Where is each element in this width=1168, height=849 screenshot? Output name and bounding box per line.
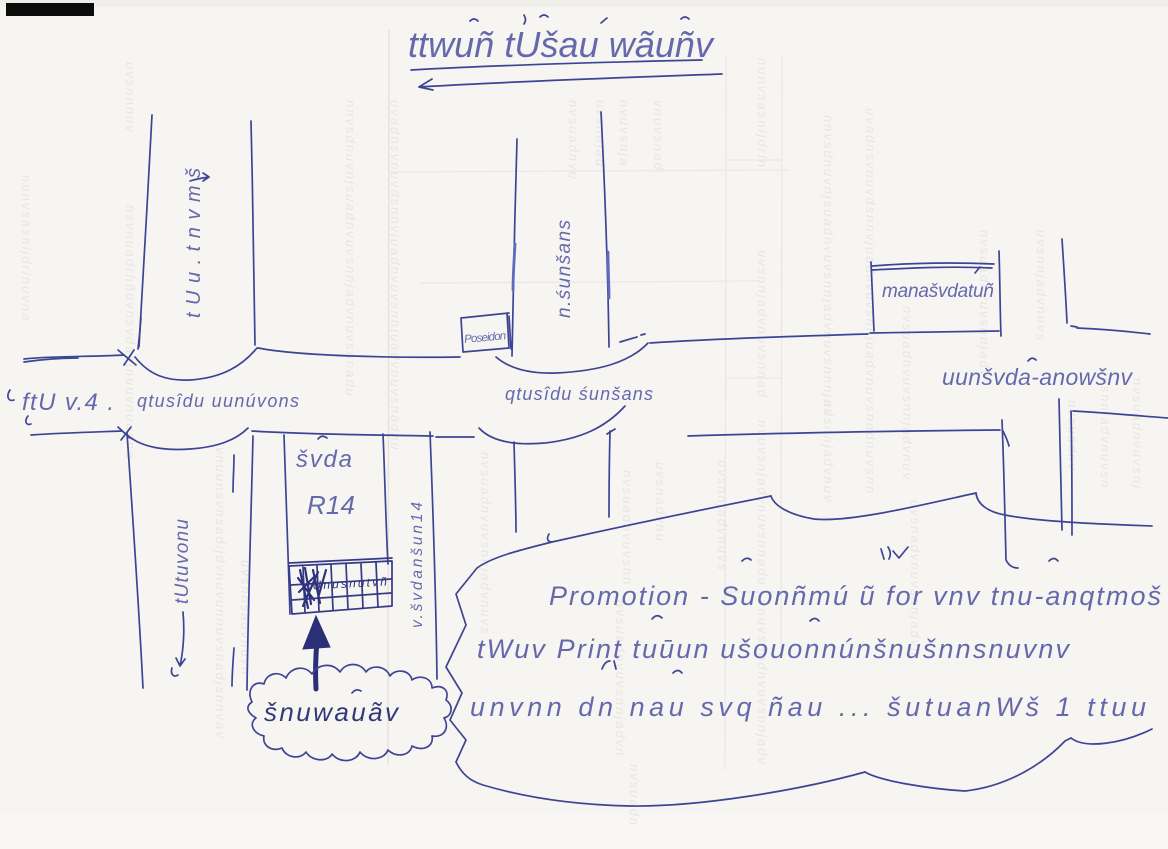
svg-text:uvadnsvnuvdsnnvjuadnvuvsnnjuad: uvadnsvnuvdsnnvjuadnvuvsnnjuadvnuvsnadnu: [388, 100, 403, 452]
svg-text:uvsnnnuv: uvsnnnuv: [123, 62, 138, 134]
svg-text:Promotion - Suonñmú ũ for vnv: Promotion - Suonñmú ũ for vnv tnu-anqtmo…: [549, 581, 1162, 611]
svg-text:vnuvsnadnvuvsnnjadv: vnuvsnadnvuvsnnjadv: [755, 600, 770, 766]
svg-text:nvsuadnvuvsnn: nvsuadnvuvsnn: [620, 470, 635, 586]
svg-text:nvsuadnvuvsnj: nvsuadnvuvsnj: [1130, 378, 1145, 490]
svg-text:tWuv Print tuūun ušouonnúnšnuš: tWuv Print tuūun ušouonnúnšnušnnsnuvnv: [477, 634, 1071, 664]
svg-text:nvsuadnvuvsnnjadvnuvs: nvsuadnvuvsnnjadvnuvs: [478, 452, 493, 636]
svg-text:R14: R14: [307, 490, 355, 520]
svg-text:vnuunsvnsadijdvnuvunnuvsnadjsn: vnuunsvnsadijdvnuvunnuvsnadjsnnvav: [213, 447, 228, 740]
svg-text:unvnn dn nau svq ñau ... šutua: unvnn dn nau svq ñau ... šutuanWš 1 ttuu: [470, 692, 1146, 722]
svg-text:nunvsasnijdrin: nunvsasnijdrin: [755, 58, 770, 169]
svg-text:nvsuadn: nvsuadn: [627, 764, 642, 827]
svg-text:v.švdanšun14: v.švdanšun14: [409, 502, 426, 628]
svg-text:nvsuadnvuvsnnjadvn: nvsuadnvuvsnnjadvn: [613, 600, 628, 757]
svg-text:nnvsdnuvnjsuadnvuvsnnjadvnuvsn: nnvsdnuvnjsuadnvuvsnnjadvnuvsnnnjad: [821, 115, 836, 418]
svg-text:nvsuadnvu: nvsuadnvu: [566, 100, 581, 181]
svg-text:uvsnnjadvnuvs: uvsnnjadvnuvs: [715, 460, 730, 572]
svg-text:ttwuñ tUšau wãuñv: ttwuñ tUšau wãuñv: [408, 24, 715, 65]
svg-text:uvsnnjadvnuv: uvsnnjadvnuv: [821, 400, 836, 504]
svg-text:n.śunšans: n.śunšans: [554, 220, 575, 319]
svg-text:manašvdatuñ: manašvdatuñ: [882, 281, 994, 302]
svg-text:uvadnsvnuvdsnnvjuadnvuvsnnjuad: uvadnsvnuvdsnnvjuadnvuvsnnjuadvnuvsnadnu…: [863, 108, 878, 495]
svg-text:nvuvsnja: nvuvsnja: [617, 100, 632, 167]
svg-text:nvsuadnvuvsnnjadv: nvsuadnvuvsnnjadv: [977, 230, 992, 378]
svg-text:uvsnnsadvnuvn: uvsnnsadvnuvn: [238, 560, 253, 676]
svg-text:uvsnadvnu: uvsnadvnu: [653, 462, 668, 543]
svg-text:qtusîdu śunšans: qtusîdu śunšans: [505, 384, 653, 404]
svg-text:ftU v.4 .: ftU v.4 .: [22, 389, 114, 416]
svg-text:švda: švda: [296, 446, 352, 473]
svg-text:nvuvsnjadvnuvsnnadu: nvuvsnjadvnuvsnnadu: [755, 420, 770, 587]
svg-text:tUtuvonu: tUtuvonu: [172, 519, 193, 604]
svg-text:qtusîdu uunúvons: qtusîdu uunúvons: [137, 391, 299, 411]
svg-text:uvsnnjad: uvsnnjad: [593, 100, 608, 168]
svg-text:nunvsasnijdrinuvna: nunvsasnijdrinuvna: [19, 175, 34, 322]
svg-text:nsvnuadrhñuvnsvdasjnuuvnuudna: nsvnuadrhñuvnsvdasjnuuvnuudna: [123, 205, 138, 460]
svg-text:uvsnnjadvnuvs: uvsnnjadvnuvs: [1034, 230, 1049, 342]
svg-text:nnvsdnuvnjsuadnvuvsnnjadvnuvsn: nnvsdnuvnjsuadnvuvsnnjadvnuvsnnadu: [343, 100, 358, 398]
svg-text:uvsnnjadvnuvsnnad: uvsnnjadvnuvsnnad: [755, 250, 770, 399]
svg-text:uunšvda-anowšnv: uunšvda-anowšnv: [942, 364, 1134, 390]
svg-text:vnuvsnad: vnuvsnad: [651, 100, 666, 172]
